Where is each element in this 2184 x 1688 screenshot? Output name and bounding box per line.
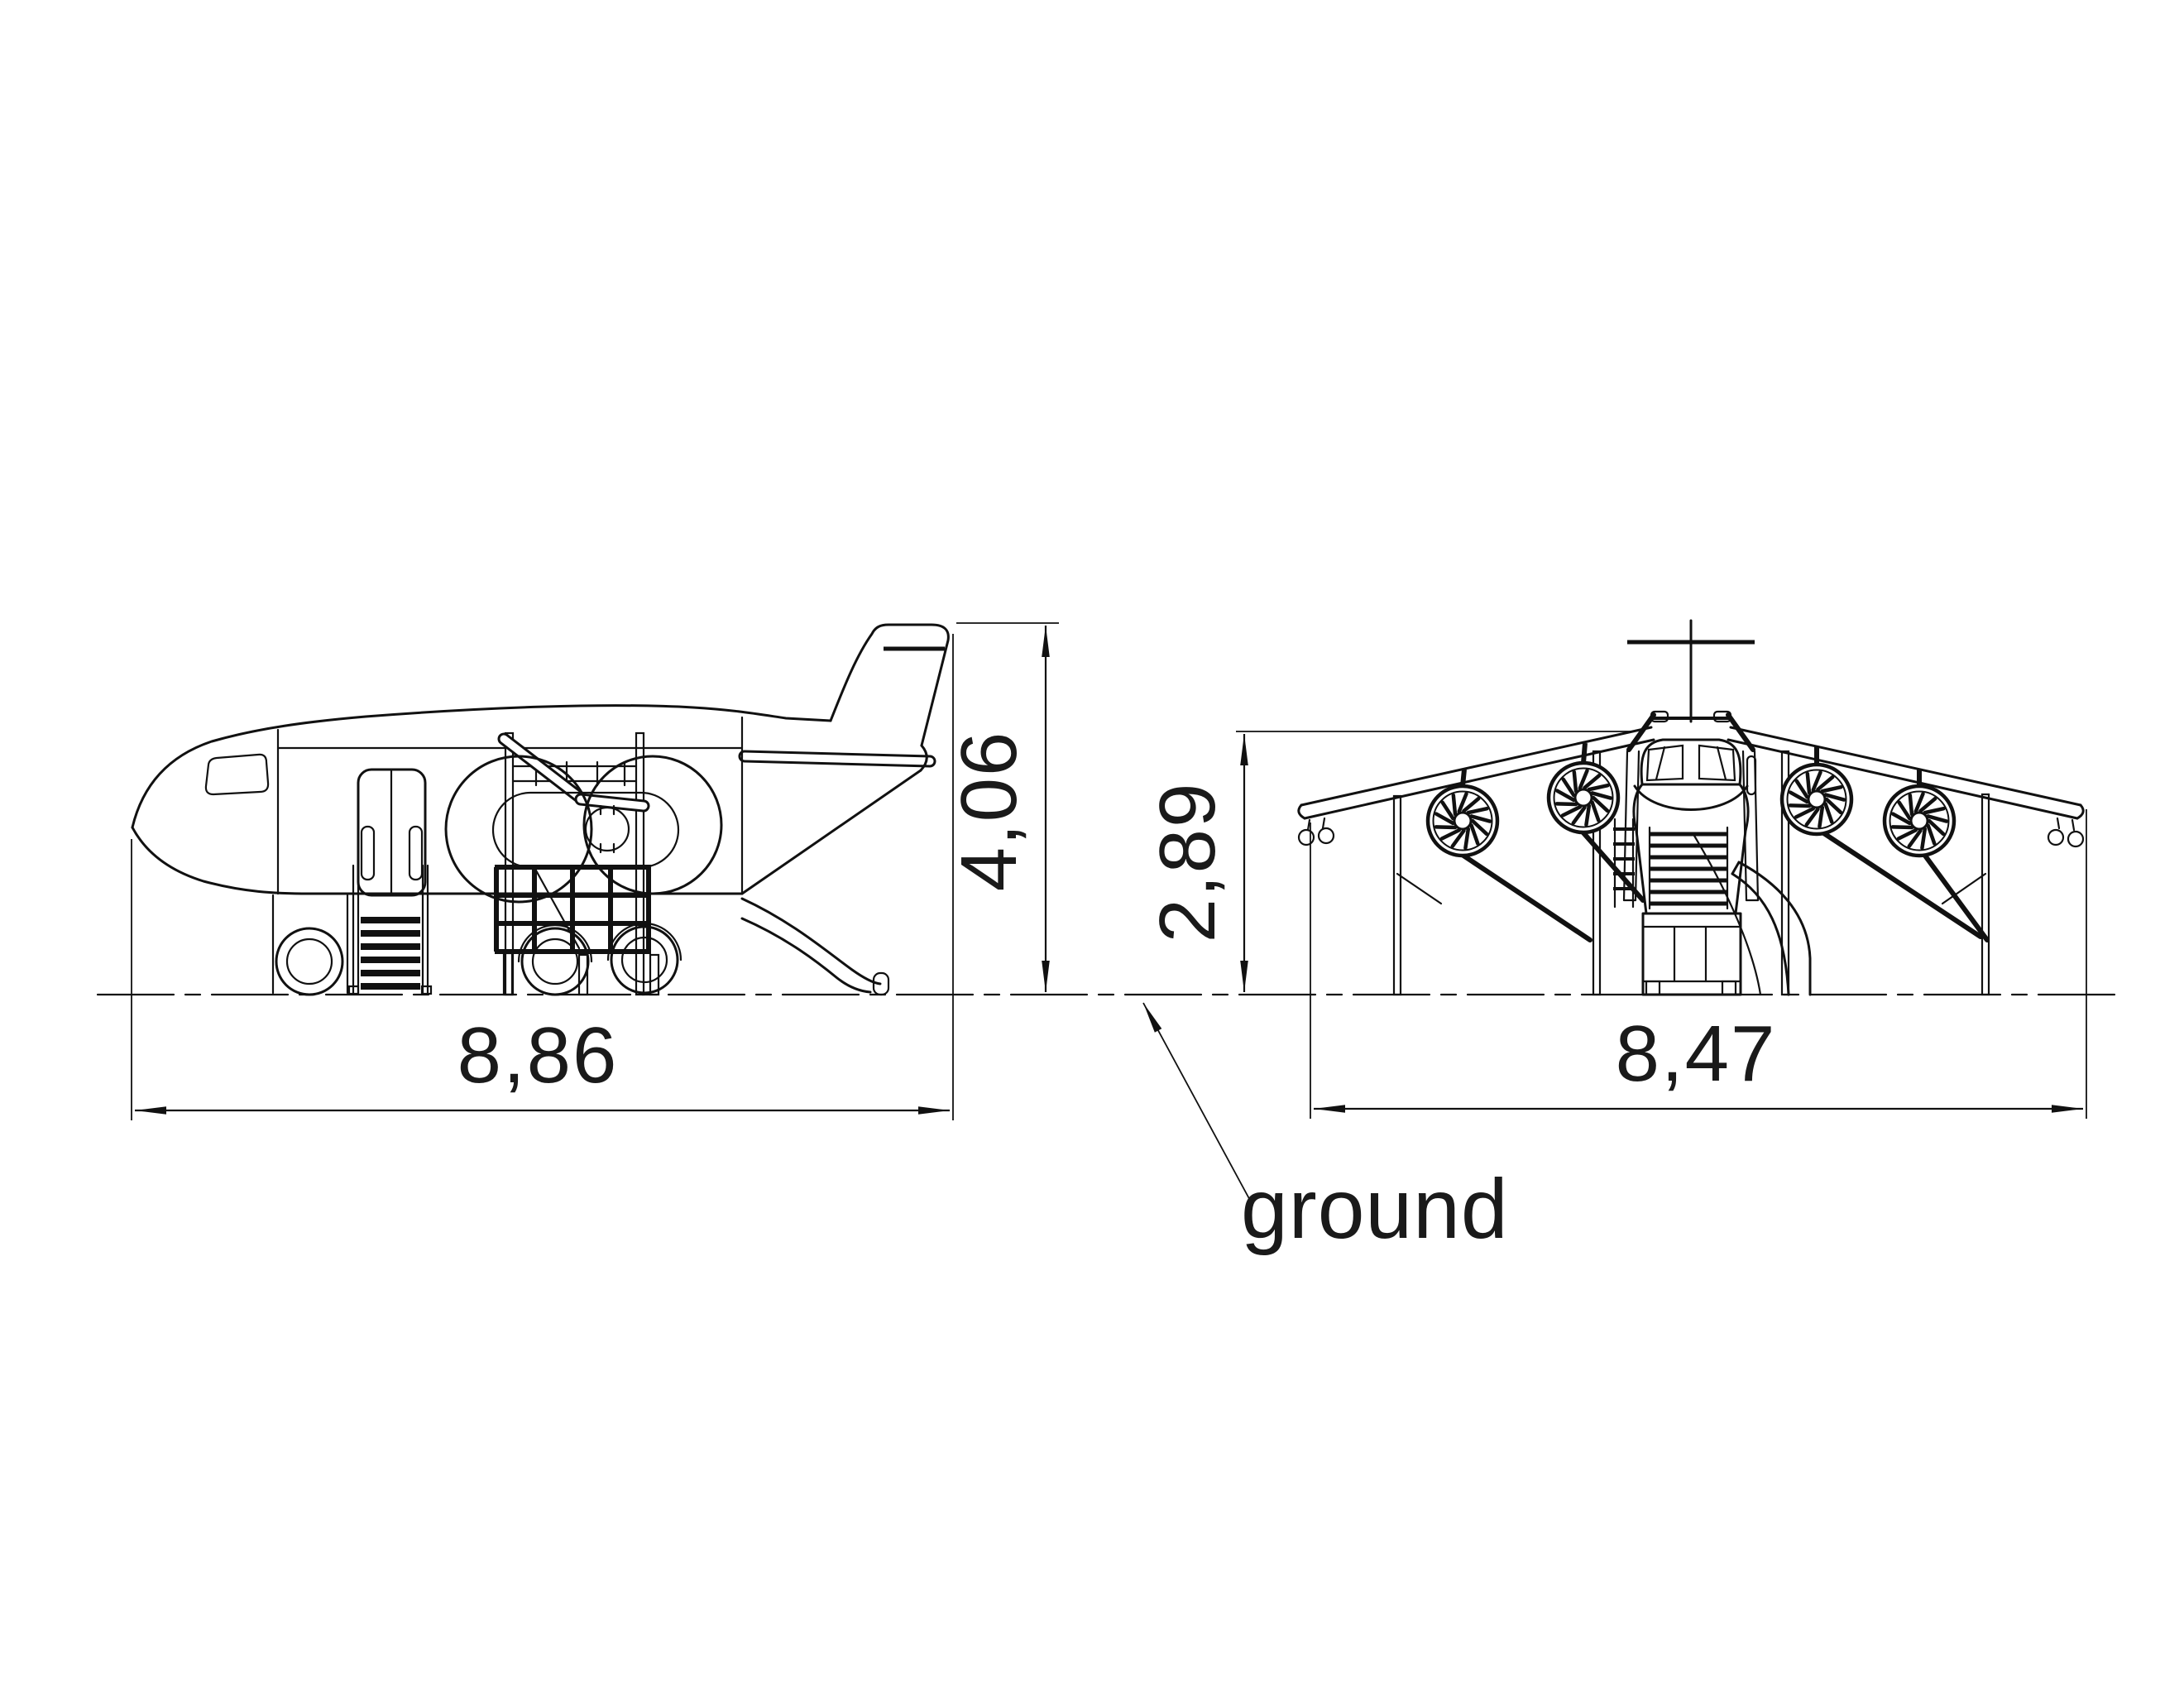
dimension-side-height: 4,06 <box>945 623 1059 992</box>
airplane-side-view-icon <box>132 625 948 995</box>
engine-turbine-right-outer <box>1885 786 1954 856</box>
drawing-canvas: 8,86 4,06 2,89 8,47 ground <box>0 0 2184 1688</box>
side-door <box>358 770 425 895</box>
technical-drawing-sheet: 8,86 4,06 2,89 8,47 ground <box>0 0 2184 1688</box>
nose-wheel <box>273 895 347 995</box>
engine-turbine-left-outer <box>1428 786 1497 856</box>
engine-turbine-right-inner <box>1782 765 1851 834</box>
front-view-slide <box>1694 836 1810 995</box>
support-posts <box>1394 751 1989 995</box>
ground-callout: ground <box>1143 1003 1509 1256</box>
rear-slide <box>742 899 888 995</box>
dimension-label-front-width: 8,47 <box>1616 1009 1777 1098</box>
fuselage-front <box>1624 712 1758 995</box>
tailplane <box>745 756 930 761</box>
tail-mast <box>1627 621 1755 722</box>
dimension-front-height: 2,89 <box>1143 731 1631 992</box>
airplane-front-view-icon <box>1299 621 2083 995</box>
tail-fin <box>831 625 948 746</box>
cockpit-side-window <box>206 755 268 794</box>
dimension-label-side-length: 8,86 <box>457 1011 619 1100</box>
rear-wheels <box>504 923 681 995</box>
dimension-label-front-height: 2,89 <box>1143 782 1232 943</box>
front-stairs <box>349 866 431 994</box>
ground-label: ground <box>1241 1162 1509 1256</box>
dimension-label-side-height: 4,06 <box>945 731 1033 892</box>
engine-pylons <box>1463 743 1919 786</box>
engine-turbine-left-inner <box>1549 763 1618 832</box>
